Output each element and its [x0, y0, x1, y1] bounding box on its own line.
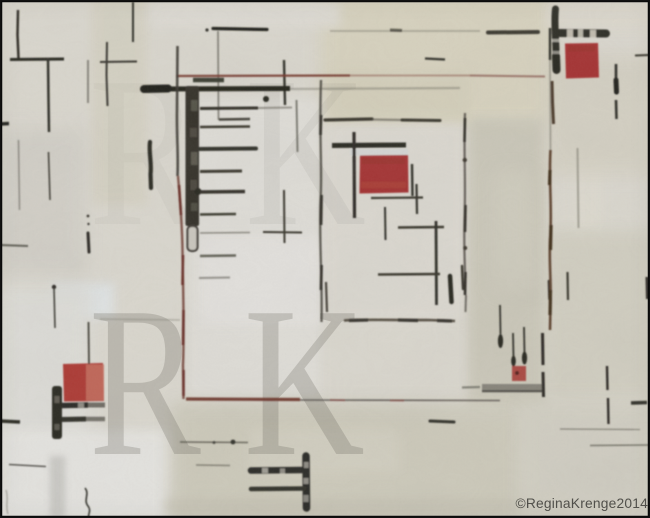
svg-text:©ReginaKrenge2014: ©ReginaKrenge2014: [516, 496, 649, 511]
